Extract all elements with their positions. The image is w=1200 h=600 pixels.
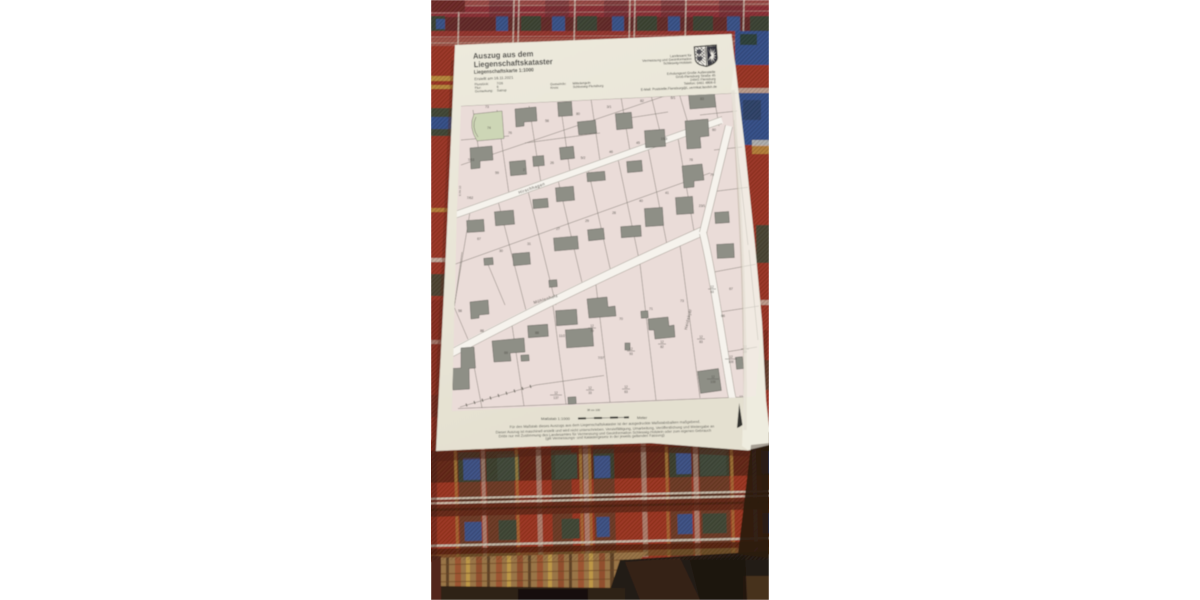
svg-text:83: 83	[699, 340, 703, 344]
svg-text:8 PA 10: 8 PA 10	[458, 185, 462, 196]
svg-text:12: 12	[624, 385, 628, 389]
svg-text:12: 12	[660, 340, 664, 344]
svg-text:78: 78	[689, 158, 693, 162]
svg-text:41: 41	[665, 191, 669, 195]
svg-text:38 cm 100: 38 cm 100	[587, 408, 601, 412]
svg-text:Meter: Meter	[637, 415, 648, 420]
svg-text:71: 71	[649, 307, 653, 311]
svg-text:46: 46	[609, 150, 613, 154]
svg-text:67: 67	[477, 237, 481, 241]
svg-text:11/2: 11/2	[559, 334, 565, 338]
svg-text:100: 100	[728, 360, 734, 364]
svg-text:2: 2	[523, 168, 525, 172]
svg-text:60: 60	[712, 128, 716, 132]
svg-text:76: 76	[508, 131, 512, 135]
svg-text:15/3: 15/3	[661, 137, 668, 141]
svg-text:12: 12	[711, 375, 715, 379]
svg-text:31: 31	[527, 242, 531, 246]
svg-text:26: 26	[550, 161, 554, 165]
svg-text:74: 74	[487, 126, 491, 130]
svg-text:80: 80	[576, 112, 580, 116]
svg-text:63: 63	[710, 290, 714, 294]
svg-text:12: 12	[629, 347, 633, 351]
svg-text:3/1: 3/1	[607, 105, 612, 109]
svg-text:33: 33	[588, 391, 592, 395]
svg-text:82: 82	[660, 345, 664, 349]
svg-text:79: 79	[710, 173, 714, 177]
svg-text:83: 83	[700, 97, 704, 101]
svg-text:73: 73	[485, 105, 489, 109]
svg-text:67: 67	[729, 287, 733, 291]
svg-text:93: 93	[629, 352, 633, 356]
svg-text:66: 66	[721, 314, 725, 318]
svg-text:Satrup: Satrup	[497, 88, 507, 92]
svg-text:Gemarkung:: Gemarkung:	[475, 89, 493, 94]
svg-text:40: 40	[639, 199, 643, 203]
svg-text:69: 69	[504, 351, 508, 355]
svg-text:7/63: 7/63	[468, 158, 475, 162]
svg-text:Maßstab 1:1000: Maßstab 1:1000	[541, 416, 571, 421]
svg-text:58: 58	[545, 119, 549, 123]
svg-text:12: 12	[590, 324, 594, 328]
svg-text:28: 28	[612, 211, 616, 215]
svg-text:58: 58	[458, 309, 462, 313]
svg-text:45: 45	[636, 141, 640, 145]
svg-text:73: 73	[680, 299, 684, 303]
svg-text:137: 137	[553, 396, 559, 400]
svg-text:82: 82	[640, 99, 644, 103]
svg-text:12: 12	[699, 335, 703, 339]
svg-text:59: 59	[495, 171, 499, 175]
svg-text:88: 88	[480, 329, 484, 333]
svg-text:12: 12	[554, 391, 558, 395]
svg-text:12: 12	[710, 285, 714, 289]
svg-text:12: 12	[729, 355, 733, 359]
svg-text:5/2: 5/2	[581, 156, 586, 160]
svg-text:30: 30	[499, 249, 503, 253]
svg-text:88: 88	[535, 331, 539, 335]
svg-text:7/62: 7/62	[467, 196, 474, 200]
svg-text:7/37: 7/37	[598, 356, 605, 360]
svg-text:6/1: 6/1	[671, 96, 676, 100]
svg-text:12: 12	[588, 386, 592, 390]
svg-text:27: 27	[556, 227, 560, 231]
svg-text:63: 63	[624, 390, 628, 394]
svg-text:100: 100	[710, 380, 716, 384]
svg-text:23/1: 23/1	[699, 204, 706, 208]
svg-text:Kreis:: Kreis:	[550, 86, 559, 90]
svg-text:29: 29	[585, 219, 589, 223]
svg-text:70: 70	[619, 317, 623, 321]
svg-text:70: 70	[590, 329, 594, 333]
